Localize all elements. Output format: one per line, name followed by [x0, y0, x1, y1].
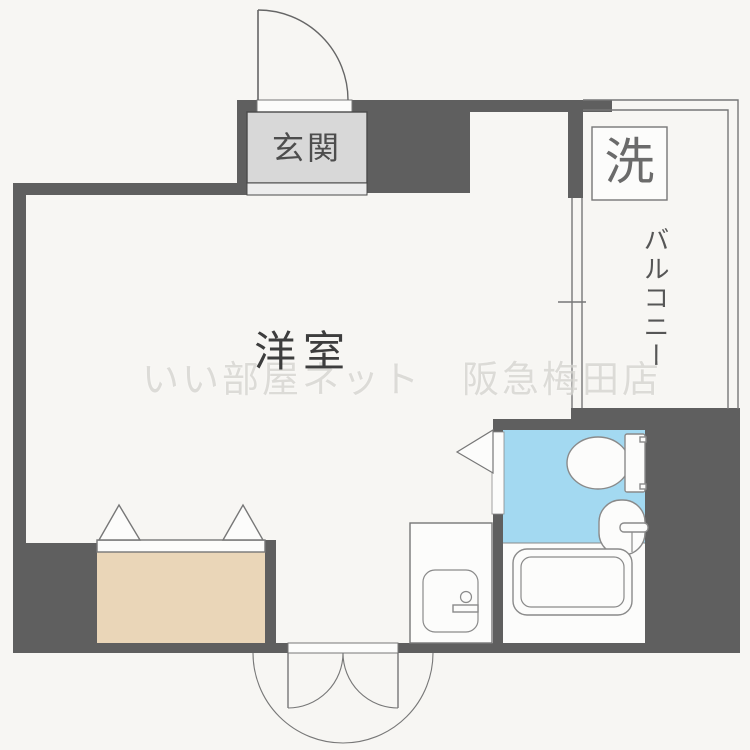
label-western-room: 洋室 [254, 331, 352, 373]
wall-bottom-left-block [13, 543, 97, 653]
label-washing-machine: 洗 [592, 137, 667, 187]
wall-top-block [365, 100, 470, 193]
wall-right-mass [645, 408, 740, 653]
floor-plan: いい部屋ネット 阪急梅田店 玄関 洋室 洗 バルコニー [0, 0, 750, 750]
kitchen-counter [410, 523, 492, 643]
washbasin-icon [599, 500, 648, 555]
watermark-text: いい部屋ネット 阪急梅田店 [142, 361, 662, 398]
label-balcony: バルコニー [641, 226, 667, 371]
bathtub-icon [513, 549, 632, 615]
closet-area [97, 505, 265, 643]
bathroom-door-icon [457, 430, 504, 514]
toilet-icon [567, 434, 646, 492]
closet-floor [97, 552, 265, 643]
entrance-door-icon [258, 10, 348, 100]
entrance-step [247, 183, 367, 195]
entrance-area [247, 10, 367, 195]
entrance-door-threshold [257, 100, 352, 112]
wall-top-left [13, 183, 247, 195]
kitchen-area [410, 523, 492, 643]
wall-bottom-under-closet [97, 643, 288, 653]
closet-door-triangle-right-icon [223, 505, 263, 540]
wall-closet-stub [265, 540, 276, 653]
label-entrance: 玄関 [247, 132, 367, 164]
wall-bottom-right [398, 643, 645, 653]
wall-balcony-left [568, 100, 583, 198]
closet-door-rail [97, 540, 265, 552]
wall-entrance-left [237, 103, 247, 189]
bottom-double-door-icon [253, 643, 433, 743]
closet-door-triangle-left-icon [99, 505, 140, 540]
wall-bathroom-top [493, 419, 650, 430]
